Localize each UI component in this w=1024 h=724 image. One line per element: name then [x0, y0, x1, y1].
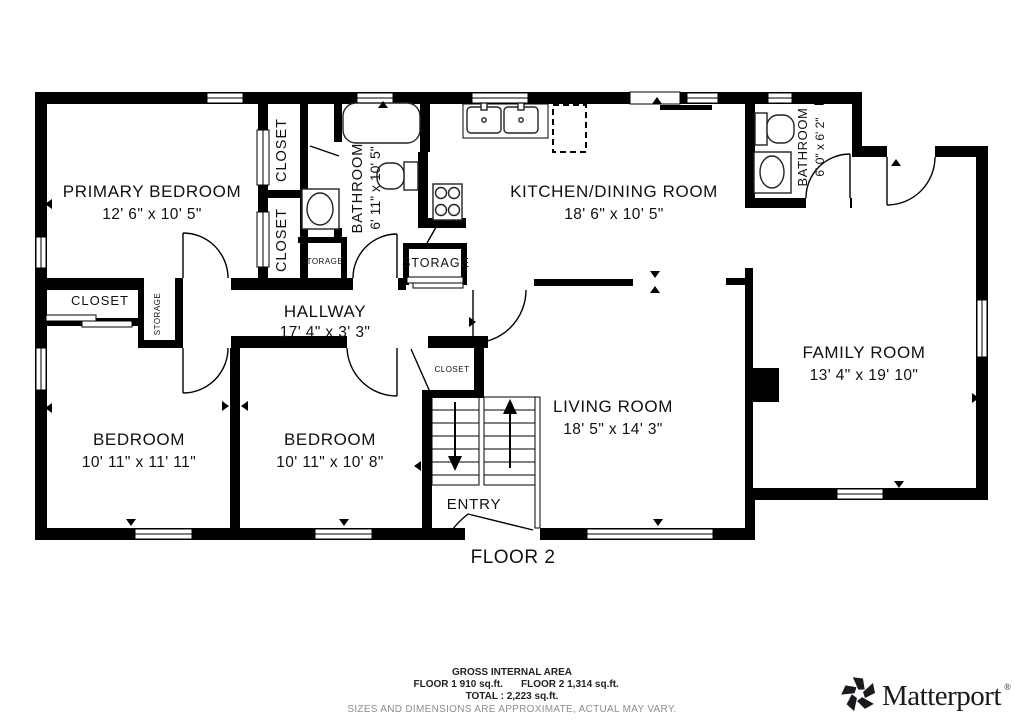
window [315, 529, 372, 539]
room-family-name: FAMILY ROOM [802, 343, 925, 362]
sink-vanity [302, 189, 339, 229]
direction-arrow [241, 401, 248, 411]
room-living-dims: 18' 5" x 14' 3" [563, 421, 663, 438]
room-bedroom-left-name: BEDROOM [93, 430, 185, 449]
room-kitchen-dims: 18' 6" x 10' 5" [564, 206, 664, 223]
closet-vertical-label: CLOSET [274, 118, 290, 182]
room-bedroom-middle-dims: 10' 11" x 10' 8" [276, 454, 384, 471]
floor-label: FLOOR 2 [471, 547, 556, 568]
room-living-name: LIVING ROOM [553, 397, 673, 416]
bathtub [343, 103, 420, 143]
storage-tall-label: STORAGE [153, 293, 162, 335]
footer-floor2-area: FLOOR 2 1,314 sq.ft. [521, 679, 619, 690]
fireplace [753, 368, 779, 402]
footer-total-area: TOTAL : 2,223 sq.ft. [466, 691, 559, 702]
door-entry [453, 514, 533, 530]
storage-small-label: STORAGE [301, 257, 343, 266]
floor-plan-canvas: PRIMARY BEDROOM 12' 6" x 10' 5" KITCHEN/… [0, 0, 1024, 724]
door-bathroom-inner [310, 146, 339, 156]
window [837, 489, 883, 499]
direction-arrow [414, 461, 421, 471]
matterport-logo: Matterport ® [840, 675, 1011, 712]
stove [433, 184, 462, 220]
footer-heading: GROSS INTERNAL AREA [452, 667, 572, 678]
window [207, 93, 243, 103]
door-closet-diagonal [411, 349, 430, 392]
floor-plan-page: PRIMARY BEDROOM 12' 6" x 10' 5" KITCHEN/… [0, 0, 1024, 724]
door-living-room [473, 290, 526, 343]
door-primary-bedroom [183, 233, 228, 278]
door-bedroom-middle [347, 348, 397, 396]
room-primary-bedroom-name: PRIMARY BEDROOM [63, 182, 241, 201]
window [36, 237, 46, 268]
direction-arrow [126, 519, 136, 526]
entry-label: ENTRY [447, 496, 502, 513]
window [687, 93, 718, 103]
direction-arrow [653, 519, 663, 526]
window [36, 348, 46, 390]
stair-up-arrow [503, 399, 517, 468]
room-bathroom-small-dims: 6' 0" x 6' 2" [813, 117, 827, 176]
matterport-registered-mark: ® [1004, 682, 1011, 692]
closet-door [257, 130, 269, 185]
room-hallway-name: HALLWAY [284, 302, 366, 321]
closet-door [257, 212, 269, 267]
direction-arrow [222, 401, 229, 411]
sliding-door [407, 277, 463, 288]
room-bathroom-small-name: BATHROOM [795, 108, 810, 187]
room-hallway-dims: 17' 4" x 3' 3" [280, 324, 371, 341]
window [357, 93, 393, 103]
closet-bedroom-label: CLOSET [434, 365, 469, 374]
window [587, 529, 713, 539]
closet-vertical-label: CLOSET [274, 208, 290, 272]
footer-floor1-area: FLOOR 1 910 sq.ft. [414, 679, 504, 690]
door-bathroom-main [353, 234, 397, 278]
stair-edge [535, 397, 540, 528]
matterport-wordmark: Matterport [882, 680, 1001, 712]
kitchen-sink [463, 103, 548, 138]
room-bathroom-main-name: BATHROOM [350, 143, 366, 234]
toilet [755, 113, 794, 145]
room-bedroom-left-dims: 10' 11" x 11' 11" [82, 454, 196, 471]
room-family-dims: 13' 4" x 19' 10" [810, 367, 919, 384]
matterport-pinwheel-icon [840, 675, 875, 712]
toilet [377, 162, 418, 190]
direction-arrow [894, 481, 904, 488]
direction-arrow [891, 159, 901, 166]
sink-vanity [754, 152, 791, 193]
direction-arrow [339, 519, 349, 526]
closet-left-label: CLOSET [71, 293, 129, 308]
walls [35, 92, 988, 540]
room-kitchen-name: KITCHEN/DINING ROOM [510, 182, 718, 201]
door-bedroom-left [183, 348, 228, 393]
room-primary-bedroom-dims: 12' 6" x 10' 5" [102, 206, 202, 223]
storage-big-label: STORAGE [402, 256, 470, 270]
room-bedroom-middle-name: BEDROOM [284, 430, 376, 449]
room-bathroom-main-dims: 6' 11" x 10' 5" [367, 146, 383, 230]
window [977, 300, 987, 357]
footer-disclaimer: SIZES AND DIMENSIONS ARE APPROXIMATE, AC… [347, 704, 676, 715]
window [768, 93, 792, 103]
direction-arrow [650, 271, 660, 278]
kitchen-island-dashed [553, 105, 586, 152]
window [472, 93, 528, 103]
direction-arrow [650, 286, 660, 293]
window [135, 529, 192, 539]
footer-area-summary: GROSS INTERNAL AREA FLOOR 1 910 sq.ft. F… [347, 667, 676, 715]
